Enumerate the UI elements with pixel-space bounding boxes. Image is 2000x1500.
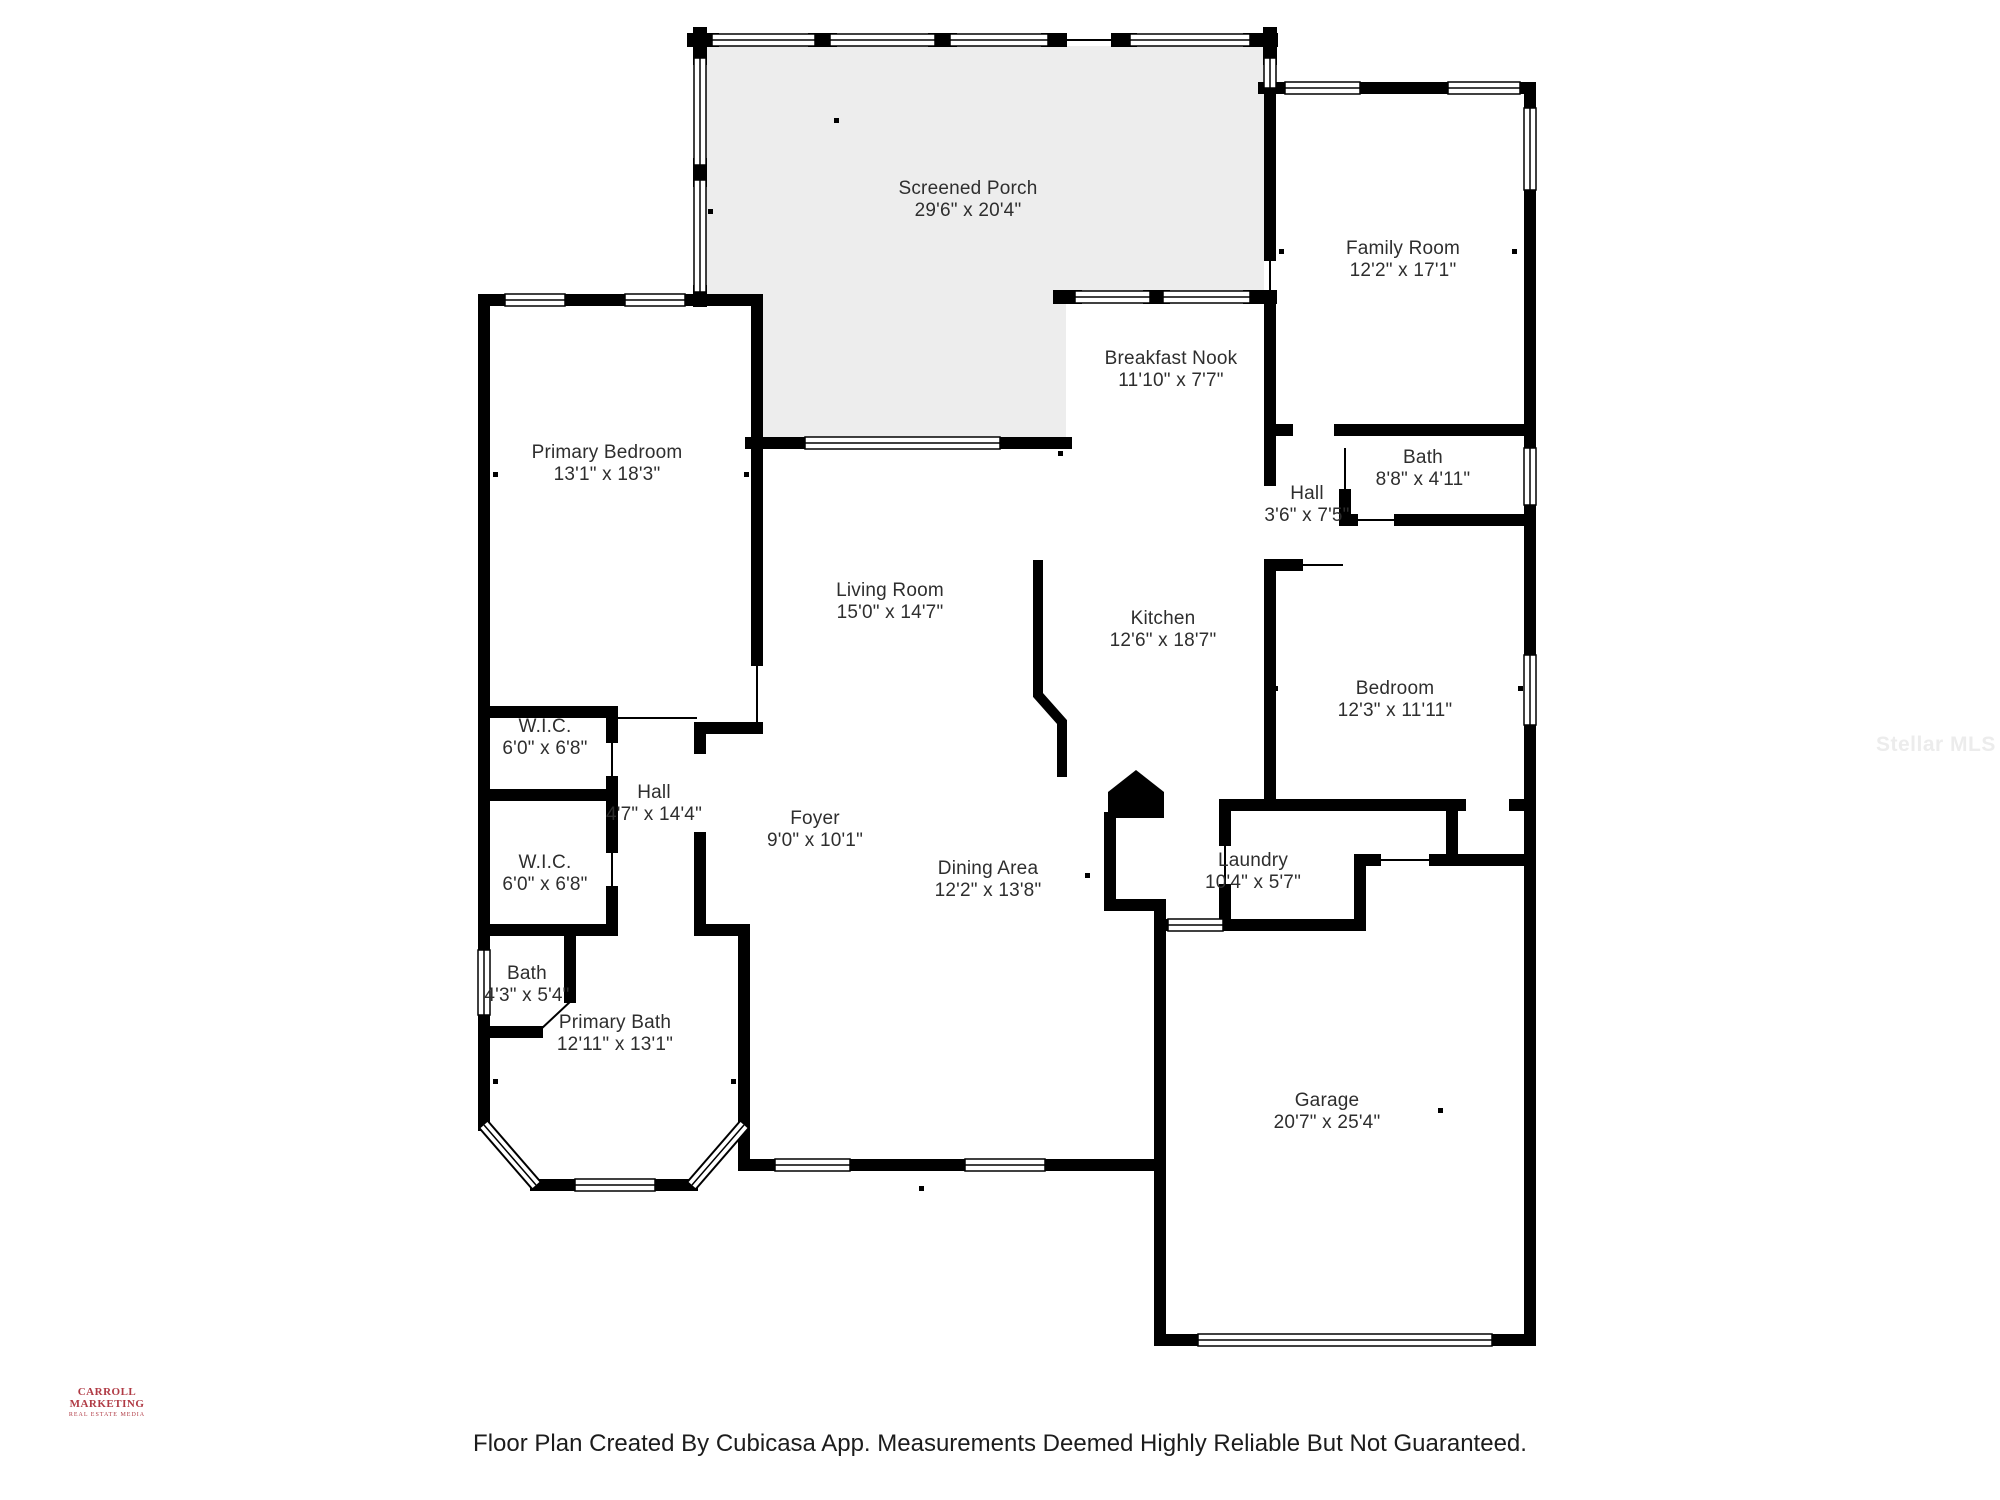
room-dimensions: 8'8" x 4'11": [1376, 469, 1471, 491]
room-dimensions: 12'6" x 18'7": [1110, 630, 1217, 652]
room-name: Hall: [637, 782, 671, 803]
bay-windows: [484, 1125, 744, 1185]
room-label-primary-bedroom: Primary Bedroom13'1" x 18'3": [532, 442, 683, 486]
room-name: Family Room: [1346, 238, 1460, 259]
room-name: W.I.C.: [519, 716, 572, 737]
room-dimensions: 10'4" x 5'7": [1205, 872, 1301, 894]
room-label-screened-porch: Screened Porch29'6" x 20'4": [898, 178, 1037, 222]
room-dimensions: 6'0" x 6'8": [502, 874, 587, 896]
room-dimensions: 12'2" x 13'8": [935, 880, 1042, 902]
front-door-icon: [1108, 770, 1164, 818]
room-dimensions: 13'1" x 18'3": [532, 464, 683, 486]
room-name: Kitchen: [1131, 608, 1196, 629]
room-label-living-room: Living Room15'0" x 14'7": [836, 580, 944, 624]
room-name: Primary Bath: [559, 1012, 671, 1033]
room-label-hall-left: Hall4'7" x 14'4": [606, 782, 702, 826]
room-dimensions: 9'0" x 10'1": [767, 830, 863, 852]
carroll-marketing-logo: CARROLL MARKETING REAL ESTATE MEDIA: [42, 1386, 172, 1418]
logo-subtitle: REAL ESTATE MEDIA: [42, 1412, 172, 1418]
room-label-garage: Garage20'7" x 25'4": [1274, 1090, 1381, 1134]
room-label-hall-upper: Hall3'6" x 7'5": [1264, 483, 1349, 527]
room-name: Dining Area: [938, 858, 1038, 879]
room-name: Garage: [1295, 1090, 1360, 1111]
room-name: Laundry: [1218, 850, 1288, 871]
room-dimensions: 11'10" x 7'7": [1105, 370, 1238, 392]
room-name: Foyer: [790, 808, 840, 829]
room-dimensions: 4'7" x 14'4": [606, 804, 702, 826]
room-dimensions: 3'6" x 7'5": [1264, 505, 1349, 527]
room-label-primary-bath: Primary Bath12'11" x 13'1": [557, 1012, 673, 1056]
disclaimer-text: Floor Plan Created By Cubicasa App. Meas…: [473, 1430, 1527, 1458]
room-dimensions: 6'0" x 6'8": [502, 738, 587, 760]
room-name: Breakfast Nook: [1105, 348, 1238, 369]
floor-plan-page: Screened Porch29'6" x 20'4"Family Room12…: [0, 0, 2000, 1500]
room-label-wic-2: W.I.C.6'0" x 6'8": [502, 852, 587, 896]
room-name: Bath: [1403, 447, 1443, 468]
room-dimensions: 20'7" x 25'4": [1274, 1112, 1381, 1134]
room-label-bedroom: Bedroom12'3" x 11'11": [1338, 678, 1453, 722]
mls-watermark: Stellar MLS: [1876, 733, 1996, 757]
room-dimensions: 12'2" x 17'1": [1346, 260, 1460, 282]
room-name: Bath: [507, 963, 547, 984]
floor-plan-drawing: [0, 0, 2000, 1500]
room-dimensions: 12'3" x 11'11": [1338, 700, 1453, 722]
room-dimensions: 12'11" x 13'1": [557, 1034, 673, 1056]
room-label-dining-area: Dining Area12'2" x 13'8": [935, 858, 1042, 902]
room-label-foyer: Foyer9'0" x 10'1": [767, 808, 863, 852]
room-dimensions: 4'3" x 5'4": [484, 985, 569, 1007]
room-label-bath-upper: Bath8'8" x 4'11": [1376, 447, 1471, 491]
room-dimensions: 15'0" x 14'7": [836, 602, 944, 624]
room-name: Living Room: [836, 580, 944, 601]
room-name: Hall: [1290, 483, 1324, 504]
room-label-wic-1: W.I.C.6'0" x 6'8": [502, 716, 587, 760]
room-name: Primary Bedroom: [532, 442, 683, 463]
room-name: Screened Porch: [898, 178, 1037, 199]
room-name: W.I.C.: [519, 852, 572, 873]
room-label-breakfast-nook: Breakfast Nook11'10" x 7'7": [1105, 348, 1238, 392]
room-name: Bedroom: [1356, 678, 1435, 699]
room-label-bath-lower: Bath4'3" x 5'4": [484, 963, 569, 1007]
room-dimensions: 29'6" x 20'4": [898, 200, 1037, 222]
logo-title: CARROLL MARKETING: [42, 1386, 172, 1410]
room-label-laundry: Laundry10'4" x 5'7": [1205, 850, 1301, 894]
room-label-family-room: Family Room12'2" x 17'1": [1346, 238, 1460, 282]
room-label-kitchen: Kitchen12'6" x 18'7": [1110, 608, 1217, 652]
